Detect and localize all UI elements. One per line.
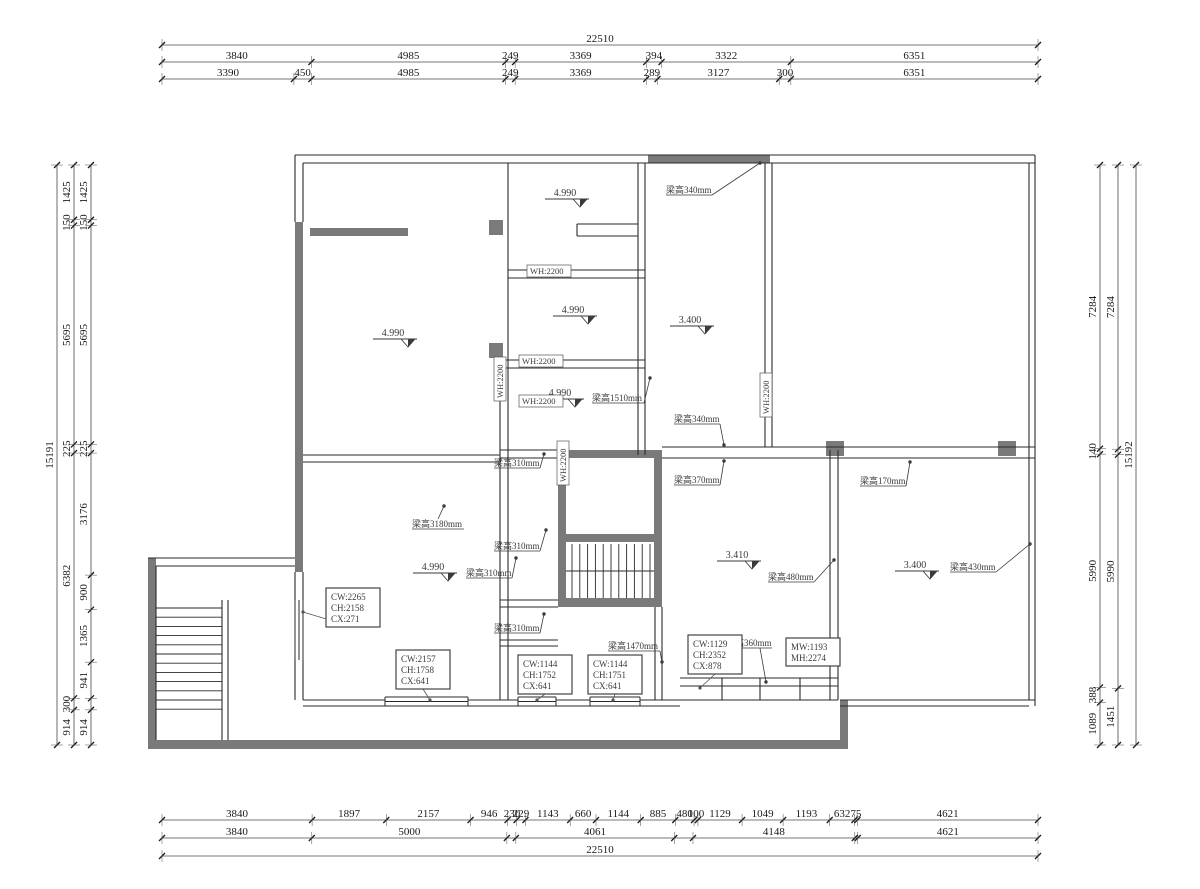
wall-segment <box>148 740 848 749</box>
wall-segment <box>148 558 156 744</box>
dim-label: 7284 <box>1105 296 1117 319</box>
dim-label: 225 <box>61 440 73 457</box>
beam-leader-dot <box>1028 542 1031 545</box>
dim-label: 914 <box>78 719 90 736</box>
dim-label: 1897 <box>338 808 361 820</box>
beam-label: 梁高480mm <box>768 571 814 582</box>
dim-label: 3369 <box>570 67 593 79</box>
beam-label: 梁高370mm <box>674 474 720 485</box>
label-text: WH:2200 <box>495 364 505 398</box>
level-value: 4.990 <box>554 188 577 199</box>
beam-leader-dot <box>514 556 517 559</box>
dim-label: 6382 <box>61 565 73 587</box>
box-line: CW:2157 <box>401 654 436 664</box>
dim-label: 660 <box>575 808 592 820</box>
label-text: WH:2200 <box>558 448 568 482</box>
wall-segment <box>558 542 566 607</box>
beam-leader-dot <box>442 504 445 507</box>
wall-segment <box>489 343 503 358</box>
dim-label: 3176 <box>78 503 90 526</box>
beam-leader-dot <box>764 680 767 683</box>
dim-label: 1089 <box>1087 712 1099 735</box>
beam-label: 梁高310mm <box>494 457 540 468</box>
box-line: CW:1129 <box>693 639 728 649</box>
level-value: 3.400 <box>679 315 702 326</box>
opening-size-box: MW:1193MH:2274 <box>786 638 840 666</box>
dim-label: 225 <box>78 440 90 457</box>
dim-label: 249 <box>502 50 519 62</box>
dim-label: 5000 <box>398 826 421 838</box>
box-line: CX:641 <box>401 676 430 686</box>
box-line: CW:2265 <box>331 592 366 602</box>
dim-label: 249 <box>502 67 519 79</box>
beam-label: 梁高310mm <box>466 567 512 578</box>
dim-label: 229 <box>513 808 530 820</box>
wall-segment <box>654 542 662 607</box>
dim-label: 4985 <box>397 67 420 79</box>
dim-label: 15191 <box>44 441 56 469</box>
dim-label: 5695 <box>78 323 90 346</box>
dim-label: 2157 <box>417 808 440 820</box>
beam-leader-dot <box>832 558 835 561</box>
box-line: CH:1751 <box>593 670 626 680</box>
wall-segment <box>654 450 662 542</box>
dim-label: 4061 <box>584 826 606 838</box>
box-leader-dot <box>535 698 538 701</box>
dim-label: 885 <box>650 808 667 820</box>
dim-label: 1129 <box>709 808 731 820</box>
dim-label: 3840 <box>226 826 249 838</box>
dim-label: 5695 <box>61 323 73 346</box>
beam-leader-dot <box>908 460 911 463</box>
box-leader-dot <box>698 686 701 689</box>
dim-label: 3127 <box>707 67 730 79</box>
beam-label: 梁高1510mm <box>592 392 642 403</box>
dim-label: 22510 <box>586 33 614 45</box>
label-text: WH:2200 <box>530 266 564 276</box>
dim-label: 1425 <box>61 181 73 204</box>
wall-segment <box>998 441 1016 456</box>
box-leader-dot <box>611 698 614 701</box>
beam-label: 梁高3180mm <box>412 518 462 529</box>
box-line: CX:641 <box>593 681 622 691</box>
window-height-label: WH:2200 <box>519 395 563 407</box>
box-line: CW:1144 <box>523 659 558 669</box>
beam-label: 梁高310mm <box>494 622 540 633</box>
dim-label: 150 <box>61 214 73 231</box>
wall-segment <box>295 222 303 572</box>
paper-background <box>0 0 1200 889</box>
beam-leader-dot <box>542 612 545 615</box>
dim-label: 632 <box>834 808 851 820</box>
dim-label: 5990 <box>1105 560 1117 583</box>
dim-label: 1425 <box>78 181 90 204</box>
dim-label: 1365 <box>78 624 90 647</box>
dim-label: 289 <box>644 67 661 79</box>
label-text: WH:2200 <box>522 356 556 366</box>
dim-label: 1193 <box>796 808 818 820</box>
wall-segment <box>558 598 662 607</box>
label-text: WH:2200 <box>761 380 771 414</box>
dim-label: 1144 <box>608 808 630 820</box>
dim-label: 4148 <box>763 826 786 838</box>
dim-label: 1451 <box>1105 706 1117 728</box>
dim-label: 3840 <box>226 50 249 62</box>
dim-label: 450 <box>294 67 311 79</box>
wall-segment <box>840 700 848 749</box>
dim-label: 4985 <box>397 50 420 62</box>
dim-label: 1049 <box>752 808 775 820</box>
box-line: CH:1752 <box>523 670 556 680</box>
wall-segment <box>648 155 770 163</box>
dim-label: 946 <box>481 808 498 820</box>
dim-label: 4621 <box>937 826 959 838</box>
window-height-label: WH:2200 <box>760 373 772 417</box>
dim-label: 300 <box>777 67 794 79</box>
level-value: 3.410 <box>726 550 749 561</box>
wall-segment <box>826 441 844 456</box>
dim-label: 7284 <box>1087 295 1099 318</box>
beam-leader-dot <box>660 660 663 663</box>
box-line: CX:641 <box>523 681 552 691</box>
dim-label: 914 <box>61 719 73 736</box>
window-height-label: WH:2200 <box>519 355 563 367</box>
label-text: WH:2200 <box>522 396 556 406</box>
beam-leader-dot <box>758 161 761 164</box>
dim-label: 300 <box>61 695 73 712</box>
wall-segment <box>310 228 408 236</box>
dim-label: 394 <box>646 50 663 62</box>
box-line: CX:271 <box>331 614 360 624</box>
window-height-label: WH:2200 <box>557 441 569 485</box>
box-line: CW:1144 <box>593 659 628 669</box>
dim-label: 75 <box>850 808 862 820</box>
level-value: 3.400 <box>904 560 927 571</box>
floor-plan-svg: 2251038404985249336939433226351339045049… <box>0 0 1200 889</box>
dim-label: 4621 <box>937 808 959 820</box>
dim-label: 150 <box>78 214 90 231</box>
dim-label: 22510 <box>586 844 614 856</box>
beam-label: 梁高310mm <box>494 540 540 551</box>
box-line: CH:2352 <box>693 650 726 660</box>
dim-label: 6351 <box>903 50 925 62</box>
beam-label: 梁高170mm <box>860 475 906 486</box>
box-line: CX:878 <box>693 661 722 671</box>
dim-label: 3390 <box>217 67 240 79</box>
beam-label: 梁高340mm <box>674 413 720 424</box>
dim-label: 1143 <box>537 808 559 820</box>
beam-label: 梁高430mm <box>950 561 996 572</box>
dim-label: 15192 <box>1123 441 1135 469</box>
window-height-label: WH:2200 <box>494 357 506 401</box>
wall-segment <box>558 450 662 458</box>
level-value: 4.990 <box>422 562 445 573</box>
dim-label: 140 <box>1087 443 1099 460</box>
beam-leader-dot <box>544 528 547 531</box>
beam-label: 梁高1470mm <box>608 640 658 651</box>
floor-plan-canvas: 2251038404985249336939433226351339045049… <box>0 0 1200 889</box>
dim-label: 6351 <box>903 67 925 79</box>
box-line: CH:2158 <box>331 603 365 613</box>
dim-label: 3322 <box>715 50 737 62</box>
dim-label: 900 <box>78 584 90 601</box>
dim-label: 3369 <box>570 50 593 62</box>
box-line: MH:2274 <box>791 653 827 663</box>
beam-label: 梁高340mm <box>666 184 712 195</box>
wall-segment <box>558 534 662 542</box>
box-line: CH:1758 <box>401 665 435 675</box>
dim-label: 388 <box>1087 686 1099 703</box>
dim-label: 941 <box>78 672 90 689</box>
box-line: MW:1193 <box>791 642 828 652</box>
wall-segment <box>489 220 503 235</box>
box-leader-dot <box>301 610 304 613</box>
window-height-label: WH:2200 <box>527 265 571 277</box>
beam-leader-dot <box>722 459 725 462</box>
level-value: 4.990 <box>382 328 405 339</box>
beam-leader-dot <box>542 452 545 455</box>
dim-label: 3840 <box>226 808 249 820</box>
dim-label: 100 <box>688 808 705 820</box>
beam-leader-dot <box>648 376 651 379</box>
level-value: 4.990 <box>562 305 585 316</box>
box-leader-dot <box>428 698 431 701</box>
beam-leader-dot <box>722 443 725 446</box>
dim-label: 5990 <box>1087 559 1099 582</box>
